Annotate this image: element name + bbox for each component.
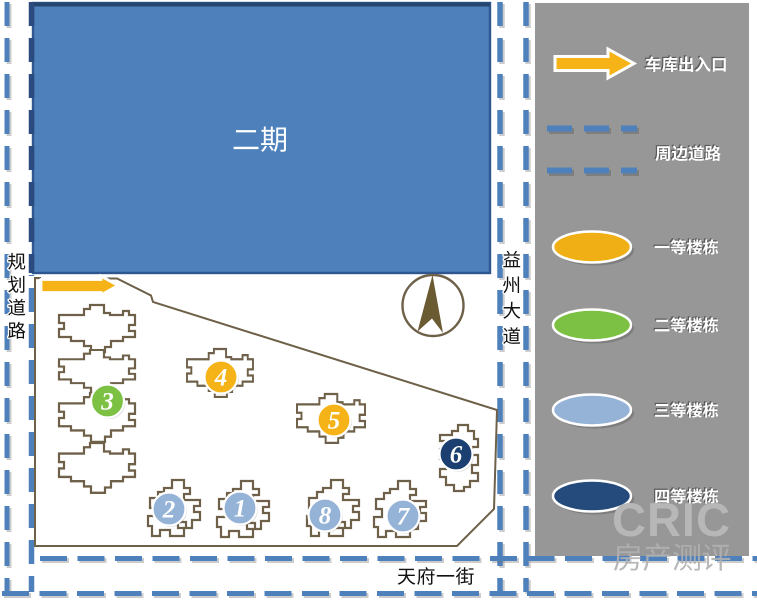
svg-text:CRIC: CRIC — [612, 493, 731, 546]
svg-text:3: 3 — [100, 389, 114, 416]
svg-text:5: 5 — [328, 408, 341, 435]
svg-text:2: 2 — [162, 497, 176, 524]
svg-text:6: 6 — [450, 442, 463, 469]
svg-text:1: 1 — [234, 496, 247, 523]
svg-text:7: 7 — [397, 504, 411, 531]
svg-text:4: 4 — [214, 365, 228, 392]
svg-text:8: 8 — [319, 503, 332, 530]
